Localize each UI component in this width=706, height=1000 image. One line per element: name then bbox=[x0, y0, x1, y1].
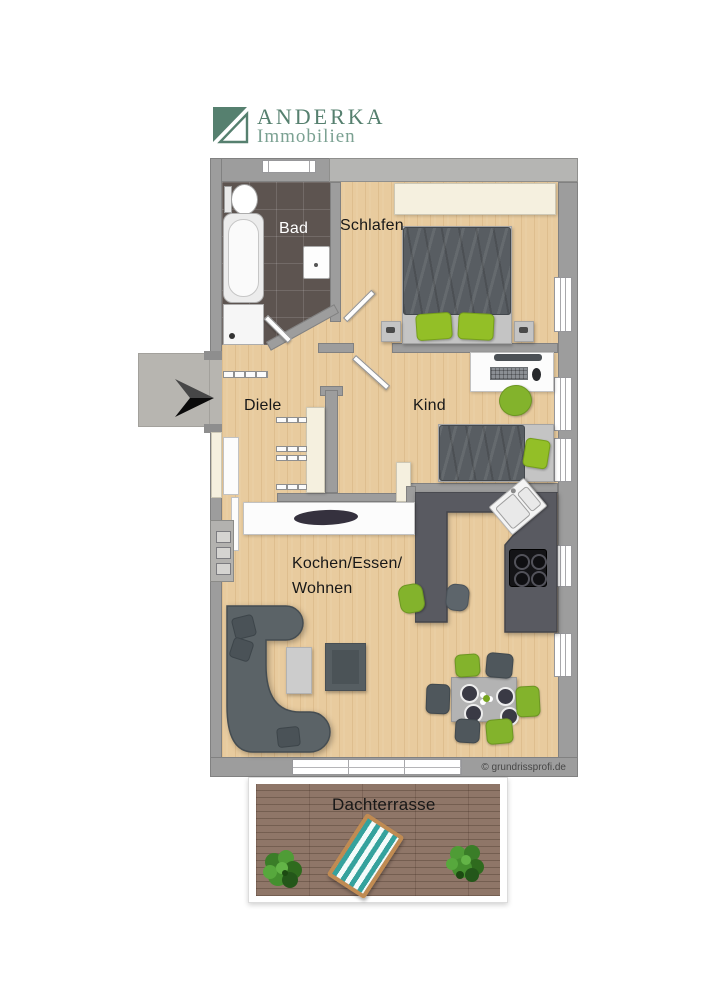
bar-stool-gray bbox=[445, 583, 471, 612]
desk-monitor bbox=[494, 354, 542, 361]
room-label-bad: Bad bbox=[279, 221, 308, 237]
window-kind-desk bbox=[554, 377, 572, 431]
wall-diele-bottom bbox=[277, 493, 411, 502]
terrace-sliding-door bbox=[292, 759, 462, 775]
room-label-wohnen-line2: Wohnen bbox=[292, 581, 353, 597]
wall-diele-vertical bbox=[325, 390, 338, 493]
cooktop-burner bbox=[531, 571, 547, 587]
kind-bed-blanket bbox=[439, 425, 525, 481]
coat-rail-2 bbox=[276, 446, 307, 452]
wall-schlafen-kind-left bbox=[318, 343, 354, 353]
brand-subtitle: Immobilien bbox=[257, 126, 356, 148]
coffee-table bbox=[325, 643, 366, 691]
plate bbox=[496, 687, 515, 706]
room-label-diele: Diele bbox=[244, 398, 281, 414]
dining-chair bbox=[425, 684, 450, 715]
meter-box-cell bbox=[216, 547, 231, 559]
nightstand-item bbox=[386, 327, 395, 333]
window-top-bad bbox=[262, 160, 316, 173]
dining-chair bbox=[454, 718, 480, 743]
meter-box bbox=[210, 520, 234, 582]
coat-rail-1 bbox=[276, 417, 307, 423]
window-schlafen bbox=[554, 277, 572, 332]
cooktop-burner bbox=[514, 554, 530, 570]
dining-chair bbox=[454, 653, 481, 678]
wall-top-right bbox=[329, 158, 578, 182]
double-bed-blanket bbox=[403, 227, 511, 315]
window-kind-bed bbox=[554, 438, 572, 482]
dining-table bbox=[451, 677, 517, 722]
entrance-arrow-icon bbox=[170, 374, 218, 422]
bathtub-basin bbox=[228, 219, 259, 297]
bedroom-wardrobe bbox=[394, 183, 556, 215]
bed-pillow-left bbox=[415, 312, 453, 341]
dining-chair bbox=[515, 685, 541, 717]
cooktop-burner bbox=[514, 571, 530, 587]
coat-rail-4 bbox=[276, 484, 307, 490]
meter-box-cell bbox=[216, 531, 231, 543]
room-label-wohnen-line1: Kochen/Essen/ bbox=[292, 556, 402, 572]
plant-icon bbox=[260, 846, 306, 892]
desk-keyboard bbox=[490, 367, 528, 380]
side-table bbox=[286, 647, 312, 694]
coat-rail-entry bbox=[223, 371, 268, 378]
plant-icon bbox=[442, 840, 488, 886]
dining-chair bbox=[485, 652, 514, 679]
desk-mouse bbox=[532, 368, 541, 381]
cooktop-burner bbox=[531, 554, 547, 570]
window-living bbox=[554, 633, 572, 677]
coffee-table-top bbox=[332, 650, 359, 684]
dining-chair bbox=[485, 718, 514, 745]
toilet bbox=[231, 184, 258, 215]
meter-box-cell bbox=[216, 563, 231, 575]
room-label-terrasse: Dachterrasse bbox=[332, 796, 436, 813]
brand-logo bbox=[212, 106, 249, 144]
wall-bad-schlafen bbox=[330, 182, 341, 322]
hall-wardrobe bbox=[306, 407, 325, 493]
sink-drain bbox=[314, 263, 318, 267]
watermark: © grundrissprofi.de bbox=[448, 762, 566, 773]
brand-logo-icon bbox=[212, 106, 249, 144]
sofa-pillow bbox=[276, 726, 301, 748]
table-decor-green bbox=[483, 695, 490, 702]
entry-jamb-top bbox=[204, 351, 222, 360]
cooktop bbox=[509, 549, 547, 587]
open-door-panel bbox=[223, 437, 239, 495]
plate bbox=[460, 684, 479, 703]
shower-drain bbox=[229, 333, 235, 339]
kind-bed-pillow bbox=[522, 437, 551, 470]
coat-rail-3 bbox=[276, 455, 307, 461]
room-label-schlafen: Schlafen bbox=[340, 218, 404, 234]
left-wall-panel bbox=[211, 432, 222, 498]
floorplan-page: ANDERKA Immobilien bbox=[0, 0, 706, 1000]
room-label-kind: Kind bbox=[413, 398, 446, 414]
shower bbox=[223, 304, 264, 345]
nightstand-item bbox=[519, 327, 528, 333]
bed-pillow-right bbox=[457, 312, 494, 341]
